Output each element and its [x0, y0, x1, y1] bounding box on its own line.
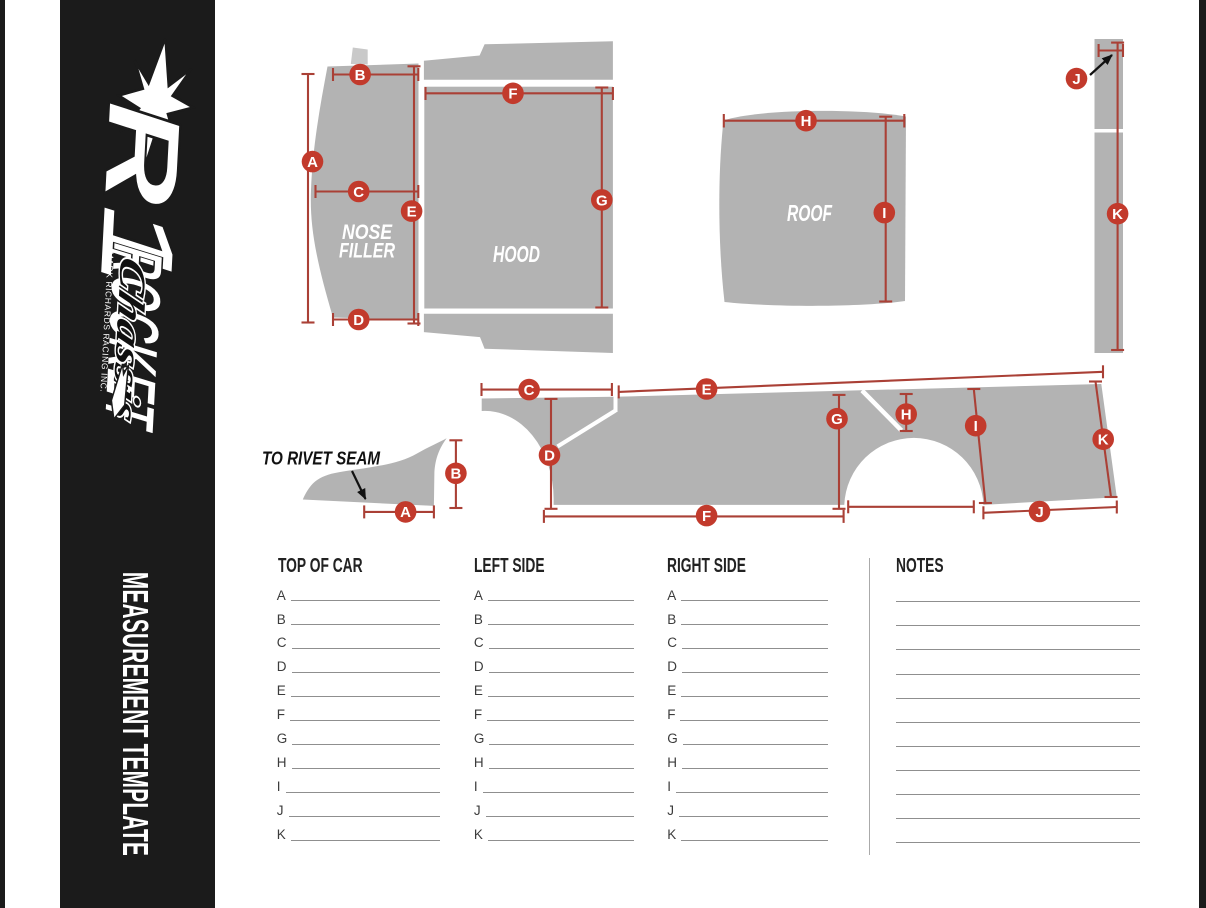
svg-text:G: G	[831, 411, 843, 428]
svg-text:I: I	[882, 205, 886, 222]
svg-text:HOOD: HOOD	[493, 241, 540, 267]
svg-text:K: K	[1112, 206, 1123, 223]
svg-text:F: F	[508, 86, 517, 103]
svg-text:J: J	[1072, 71, 1080, 88]
svg-text:A: A	[400, 504, 411, 521]
svg-text:J: J	[1035, 504, 1043, 521]
svg-text:C: C	[524, 382, 535, 399]
svg-text:B: B	[355, 67, 366, 84]
svg-text:I: I	[974, 418, 978, 435]
svg-text:H: H	[801, 113, 812, 130]
svg-text:E: E	[407, 204, 417, 221]
svg-text:E: E	[702, 381, 712, 398]
svg-text:D: D	[353, 312, 364, 329]
svg-text:D: D	[544, 448, 555, 465]
svg-text:H: H	[901, 407, 912, 424]
svg-text:F: F	[702, 508, 711, 525]
svg-text:C: C	[353, 184, 364, 201]
svg-text:ROOF: ROOF	[787, 200, 833, 226]
svg-text:K: K	[1098, 432, 1109, 449]
svg-text:FILLER: FILLER	[339, 240, 396, 263]
svg-text:A: A	[307, 154, 318, 171]
svg-text:B: B	[450, 466, 461, 483]
svg-text:TO RIVET SEAM: TO RIVET SEAM	[262, 449, 381, 469]
svg-text:G: G	[596, 192, 608, 209]
